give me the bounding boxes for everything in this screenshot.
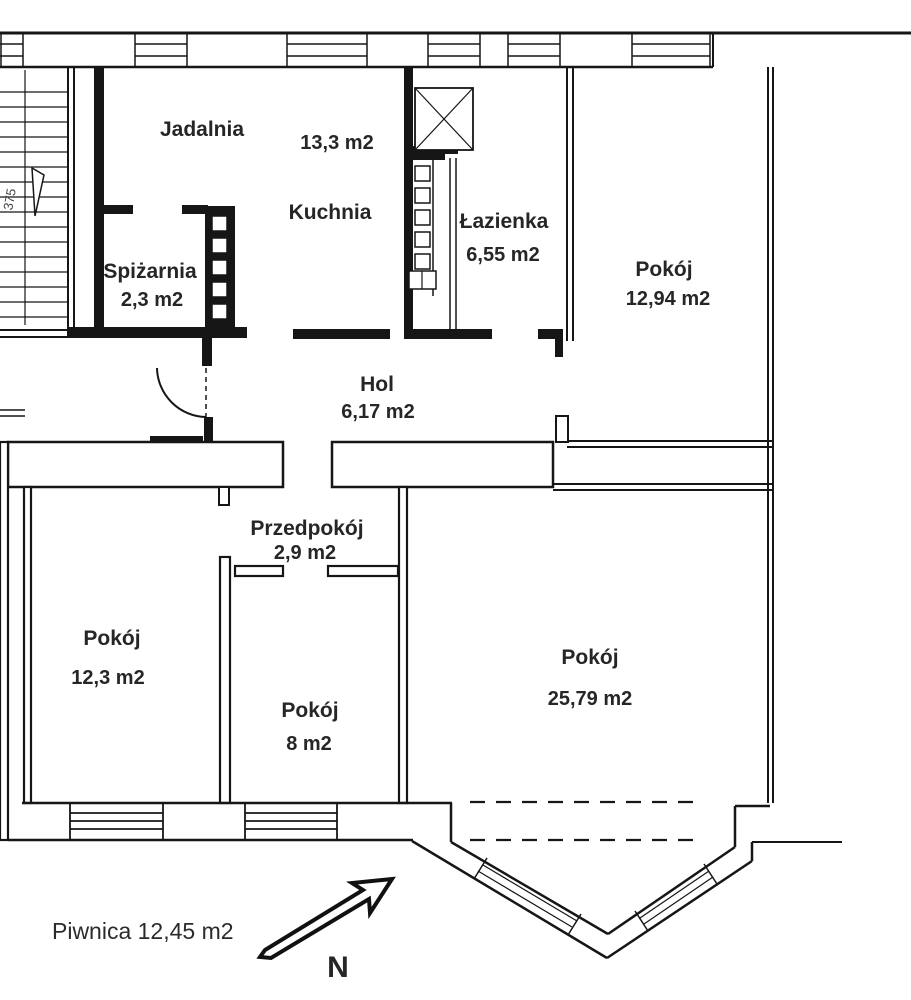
room-label-pokoj-s: Pokój: [281, 699, 338, 722]
door-jamb-ne: [556, 416, 568, 442]
basement-note: Piwnica 12,45 m2: [52, 918, 234, 944]
room-label-pokoj-sw: Pokój: [83, 627, 140, 650]
room-area-pokoj-ne: 12,94 m2: [626, 288, 711, 310]
flue-squares-spizarnia: [212, 216, 227, 319]
room-label-hol: Hol: [360, 373, 394, 396]
room-label-spizarnia: Spiżarnia: [103, 260, 197, 283]
room-area-spizarnia: 2,3 m2: [121, 289, 183, 311]
room-label-kuchnia: Kuchnia: [289, 201, 372, 224]
floor-plan: 375: [0, 0, 911, 1000]
room-area-pokoj-s: 8 m2: [286, 733, 332, 755]
north-label: N: [327, 951, 349, 984]
shaft-x-box: [415, 88, 473, 150]
room-area-kuchnia: 13,3 m2: [300, 132, 373, 154]
room-label-przedpokoj: Przedpokój: [250, 517, 363, 540]
room-label-pokoj-ne: Pokój: [635, 258, 692, 281]
floor-plan-svg: 375: [0, 0, 911, 1000]
room-label-pokoj-se: Pokój: [561, 646, 618, 669]
room-area-pokoj-sw: 12,3 m2: [71, 667, 144, 689]
room-label-jadalnia: Jadalnia: [160, 118, 244, 141]
room-area-lazienka: 6,55 m2: [466, 244, 539, 266]
room-label-lazienka: Łazienka: [460, 210, 549, 233]
room-area-przedpokoj: 2,9 m2: [274, 542, 336, 564]
room-area-pokoj-se: 25,79 m2: [548, 688, 633, 710]
room-area-hol: 6,17 m2: [341, 401, 414, 423]
